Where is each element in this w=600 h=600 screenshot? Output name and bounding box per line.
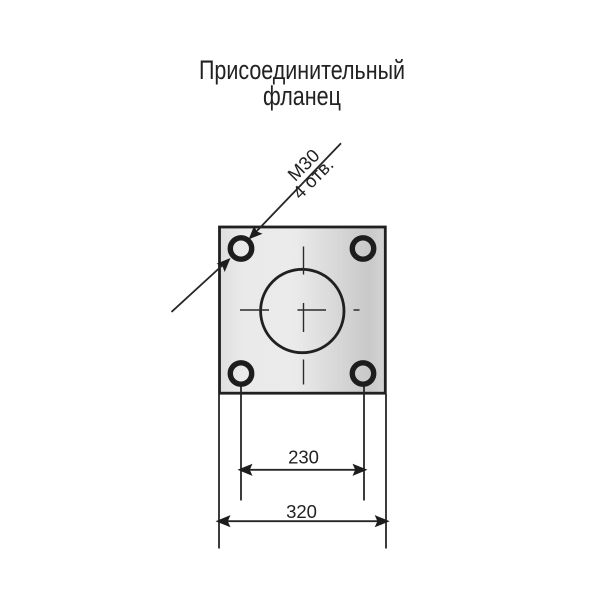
svg-text:320: 320	[286, 501, 317, 522]
svg-text:230: 230	[288, 447, 319, 468]
svg-text:фланец: фланец	[263, 81, 341, 111]
